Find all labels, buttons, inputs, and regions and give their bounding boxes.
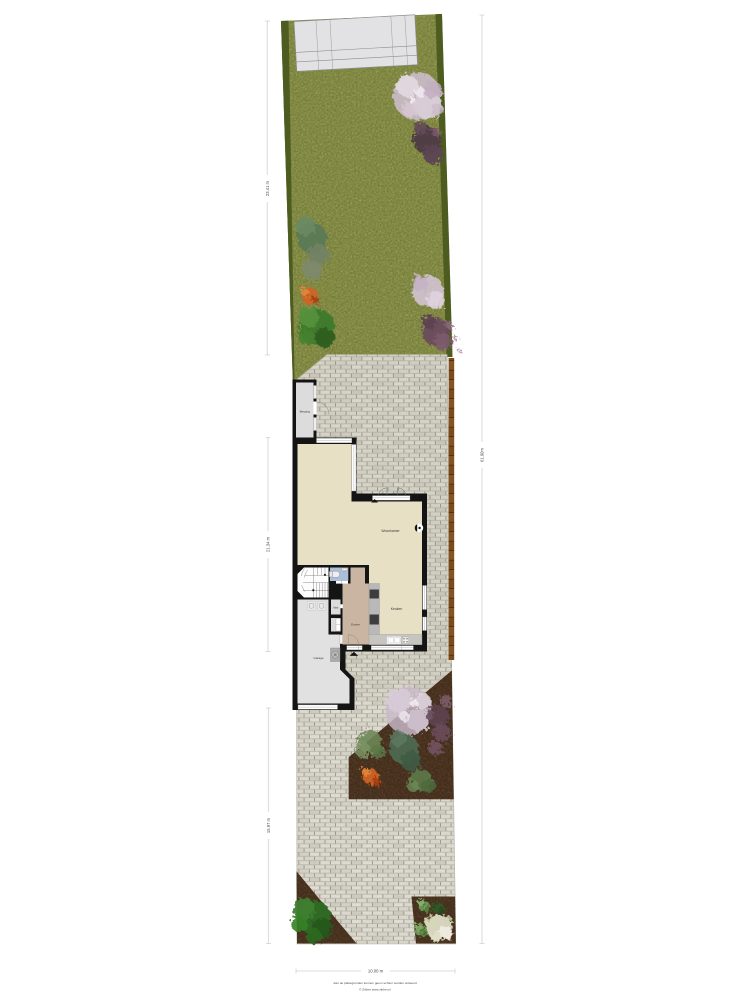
svg-text:15.97 m: 15.97 m xyxy=(266,817,271,833)
svg-text:23.41 m: 23.41 m xyxy=(265,180,270,196)
svg-text:61.90m: 61.90m xyxy=(480,448,485,462)
svg-text:Garage: Garage xyxy=(313,656,323,660)
svg-text:Berging: Berging xyxy=(300,409,311,413)
svg-text:21.34 m: 21.34 m xyxy=(266,536,271,552)
svg-text:Woonkamer: Woonkamer xyxy=(381,529,400,533)
svg-text:Keuken: Keuken xyxy=(391,607,403,611)
svg-text:Aan de plattegronden kunnen ge: Aan de plattegronden kunnen geen rechten… xyxy=(333,981,417,985)
svg-text:© Zibber www.zibber.nl: © Zibber www.zibber.nl xyxy=(359,988,391,992)
svg-text:Entree: Entree xyxy=(351,623,360,627)
svg-text:Kast: Kast xyxy=(333,605,338,609)
svg-text:10.00 m: 10.00 m xyxy=(368,969,384,974)
